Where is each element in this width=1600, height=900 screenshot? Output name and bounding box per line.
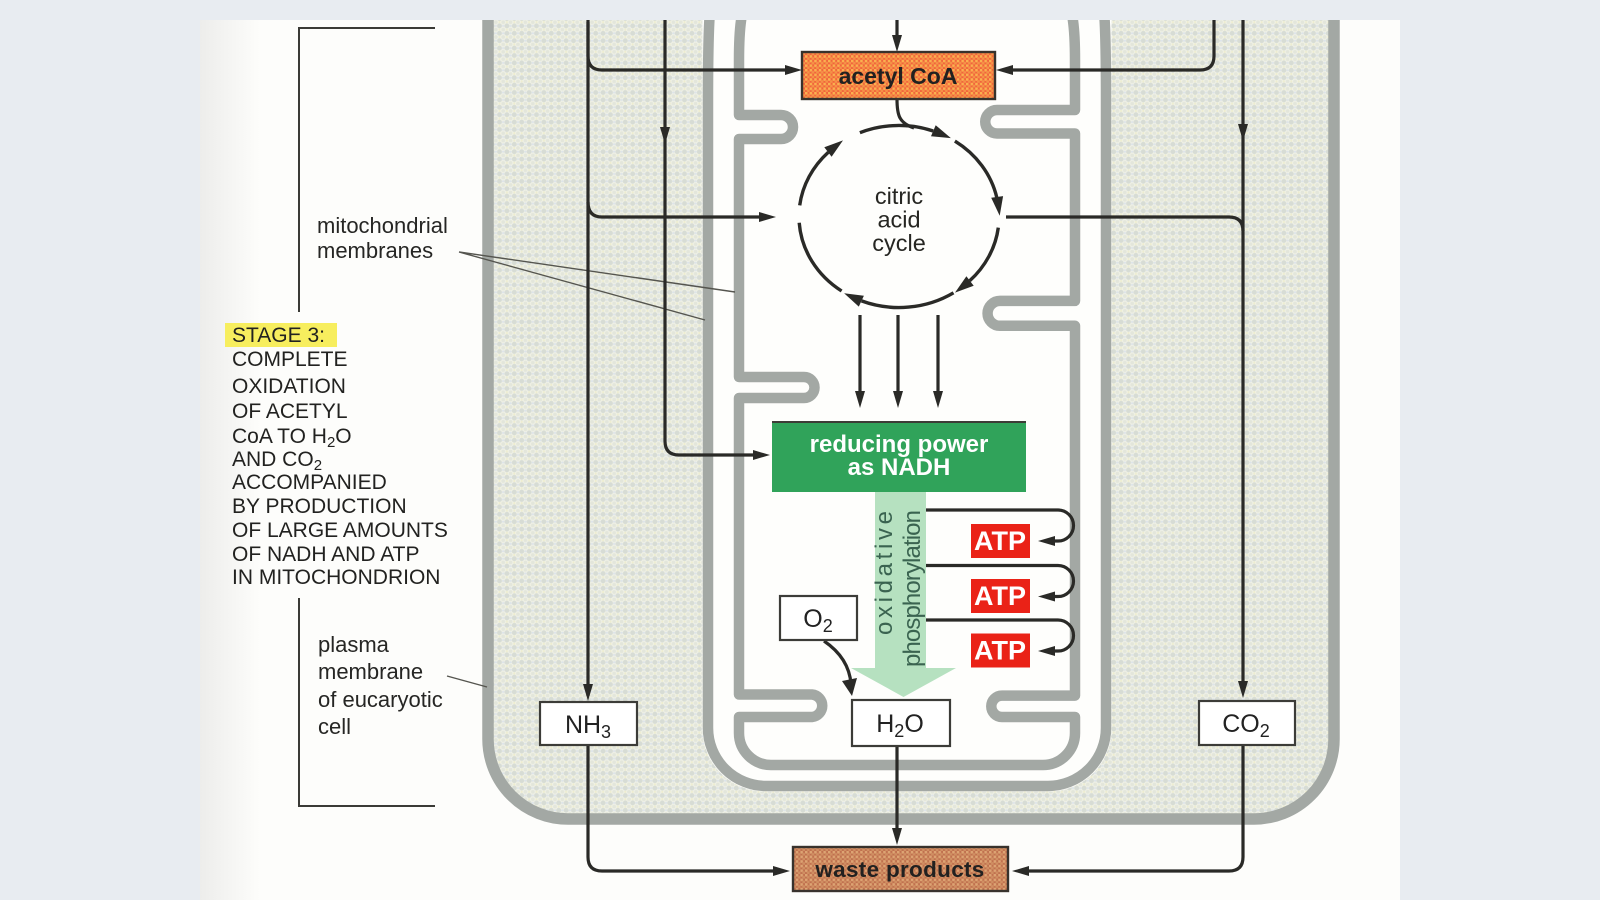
svg-text:OF ACETYL: OF ACETYL [232,400,348,423]
svg-text:COMPLETE: COMPLETE [232,348,348,371]
svg-text:as NADH: as NADH [848,454,951,481]
svg-text:ATP: ATP [974,526,1026,556]
svg-text:membrane: membrane [318,659,423,684]
svg-text:oxidative: oxidative [871,511,898,635]
svg-text:OF LARGE AMOUNTS: OF LARGE AMOUNTS [232,519,448,542]
svg-text:STAGE 3:: STAGE 3: [232,324,325,347]
svg-text:ATP: ATP [974,636,1026,666]
svg-text:citric: citric [875,183,924,209]
svg-text:cell: cell [318,714,351,739]
svg-text:ATP: ATP [974,581,1026,611]
svg-text:acid: acid [877,207,920,233]
svg-text:OXIDATION: OXIDATION [232,375,346,398]
svg-text:membranes: membranes [317,238,433,263]
svg-text:phosphorylation: phosphorylation [899,510,926,667]
svg-text:acetyl CoA: acetyl CoA [839,63,958,89]
svg-text:of eucaryotic: of eucaryotic [318,687,443,712]
svg-text:OF NADH AND ATP: OF NADH AND ATP [232,543,419,566]
svg-text:mitochondrial: mitochondrial [317,213,448,238]
svg-text:plasma: plasma [318,632,390,657]
svg-text:ACCOMPANIED: ACCOMPANIED [232,471,387,494]
svg-text:IN MITOCHONDRION: IN MITOCHONDRION [232,566,440,589]
svg-text:BY PRODUCTION: BY PRODUCTION [232,495,407,518]
svg-text:waste products: waste products [814,857,984,882]
svg-text:cycle: cycle [872,230,926,256]
